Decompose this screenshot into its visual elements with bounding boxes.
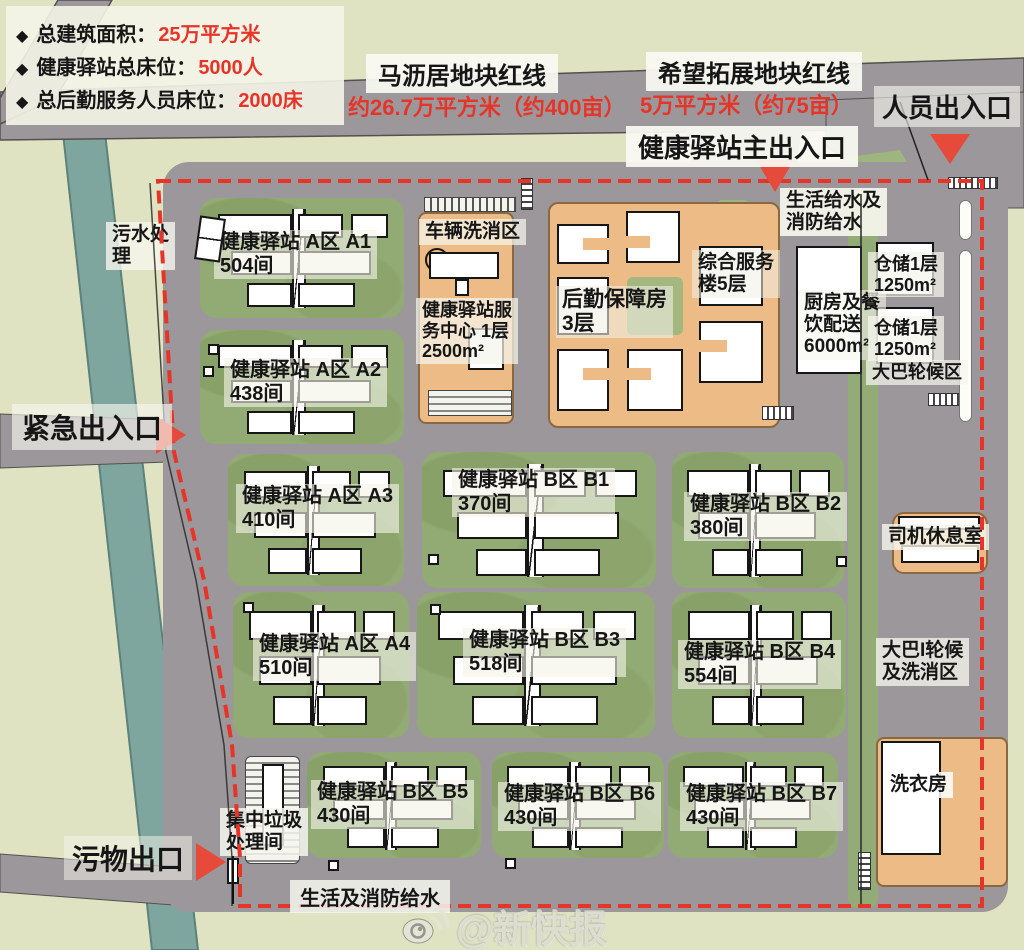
parcel-right-title: 希望拓展地块红线 [646, 52, 862, 91]
dorm-building [531, 696, 598, 725]
parcel-right-area: 5万平方米（约75亩） [640, 88, 853, 120]
crosswalk [948, 177, 998, 189]
legend-value: 5000人 [198, 51, 263, 80]
block-b5: 健康驿站 B区 B5430间 [307, 752, 481, 858]
dorm-building [298, 283, 355, 307]
dorm-building [534, 549, 600, 576]
block-a2: 健康驿站 A区 A2438间 [200, 330, 404, 444]
block-a4-label: 健康驿站 A区 A4510间 [253, 632, 416, 681]
main-entrance-label: 健康驿站主出入口 [626, 126, 858, 167]
block-a4: 健康驿站 A区 A4510间 [233, 592, 409, 738]
block-b7: 健康驿站 B区 B7430间 [668, 752, 838, 858]
block-name: 健康驿站 B区 B3 [469, 629, 620, 653]
service-center-label: 健康驿站服 务中心 1层 2500m² [416, 298, 518, 364]
room-count: 510间 [259, 657, 410, 681]
dorm-building [247, 283, 292, 307]
room-count: 518间 [469, 653, 620, 677]
wash-hatch-pad [428, 390, 512, 416]
diamond-bullet-icon: ◆ [16, 92, 28, 112]
wash-hatch-strip [424, 197, 516, 212]
corner-marker [836, 556, 847, 567]
diamond-bullet-icon: ◆ [16, 26, 28, 46]
watermark: @新快报 [398, 898, 607, 950]
logistics-label: 后勤保障房 3层 [556, 286, 673, 338]
corner-marker [428, 554, 439, 565]
corner-marker [328, 860, 339, 871]
corner-marker [430, 604, 441, 615]
bus-wait-label: 大巴轮候区 [866, 360, 968, 385]
block-b2: 健康驿站 B区 B2380间 [672, 452, 844, 588]
room-count: 504间 [220, 255, 371, 279]
dorm-building [712, 549, 750, 576]
emergency-entrance-label: 紧急出入口 [12, 404, 172, 450]
parcel-left-area: 约26.7万平方米（约400亩） [348, 90, 626, 122]
laundry-label: 洗衣房 [884, 772, 953, 798]
legend-item: ◆ 总后勤服务人员床位： 2000床 [16, 84, 334, 113]
legend-panel: ◆ 总建筑面积： 25万平方米 ◆ 健康驿站总床位： 5000人 ◆ 总后勤服务… [6, 6, 344, 125]
block-name: 健康驿站 B区 B2 [690, 493, 841, 517]
room-count: 410间 [242, 509, 393, 533]
dorm-building [755, 549, 803, 576]
legend-item: ◆ 健康驿站总床位： 5000人 [16, 51, 334, 80]
building-notch [625, 368, 651, 380]
block-name: 健康驿站 A区 A1 [220, 231, 371, 255]
block-b3-label: 健康驿站 B区 B3518间 [463, 628, 626, 677]
block-b7-label: 健康驿站 B区 B7430间 [680, 782, 843, 831]
bus-wash-label: 大巴I轮候 及洗消区 [876, 638, 969, 686]
room-count: 380间 [690, 517, 841, 541]
logistics-building [699, 321, 763, 383]
block-b3: 健康驿站 B区 B3518间 [417, 592, 655, 738]
block-name: 健康驿站 A区 A4 [259, 633, 410, 657]
legend-label: 健康驿站总床位： [36, 51, 196, 80]
diamond-bullet-icon: ◆ [16, 59, 28, 79]
legend-label: 总建筑面积： [36, 18, 156, 47]
dorm-building [756, 611, 794, 640]
vehicle-wash-label: 车辆洗消区 [419, 219, 526, 245]
block-name: 健康驿站 A区 A3 [242, 485, 393, 509]
corner-marker [203, 366, 214, 377]
weibo-logo-icon [398, 904, 450, 948]
person-entrance-label: 人员出入口 [874, 86, 1020, 127]
dorm-building [476, 549, 527, 576]
pipe-segment [227, 858, 239, 884]
room-count: 430间 [317, 805, 468, 829]
garbage-label: 集中垃圾 处理间 [220, 808, 308, 856]
water-supply-top-label: 生活给水及 消防给水 [780, 188, 887, 236]
road-lane-marker [959, 250, 972, 422]
site-plan-map: 健康驿站 A区 A1504间 健康驿站 A区 A2438间 健康驿站 A区 A3… [0, 0, 1024, 950]
dorm-building [347, 827, 385, 848]
road-lane-marker [959, 200, 972, 240]
driver-rest-label: 司机休息室 [882, 524, 989, 550]
room-count: 370间 [458, 493, 609, 517]
block-b1-label: 健康驿站 B区 B1370间 [452, 468, 615, 517]
legend-value: 25万平方米 [158, 18, 260, 47]
room-count: 554间 [684, 665, 835, 689]
legend-label: 总后勤服务人员床位： [36, 84, 236, 113]
dorm-building [391, 827, 440, 848]
parcel-left-title: 马沥居地块红线 [366, 54, 558, 93]
dorm-building [312, 548, 361, 574]
block-b4-label: 健康驿站 B区 B4554间 [678, 640, 841, 689]
sewage-label: 污水处 理 [106, 222, 175, 270]
dorm-building [247, 411, 292, 434]
laundry-building [881, 741, 941, 855]
corner-marker [208, 344, 219, 355]
dorm-building [317, 696, 366, 725]
block-name: 健康驿站 B区 B4 [684, 641, 835, 665]
complex-label: 综合服务 楼5层 [692, 250, 780, 298]
block-b2-label: 健康驿站 B区 B2380间 [684, 492, 847, 541]
waste-exit-label: 污物出口 [64, 836, 192, 880]
room-count: 430间 [504, 807, 655, 831]
block-a3-label: 健康驿站 A区 A3410间 [236, 484, 399, 533]
storage-2-label: 仓储1层 1250m² [868, 316, 944, 361]
room-count: 430间 [686, 807, 837, 831]
dorm-building [268, 548, 307, 574]
block-b6: 健康驿站 B区 B6430间 [492, 752, 664, 858]
crosswalk [858, 852, 871, 890]
building-notch [583, 368, 611, 380]
block-b4: 健康驿站 B区 B4554间 [672, 592, 846, 738]
service-center-building-1 [429, 252, 499, 279]
crosswalk [521, 178, 533, 210]
legend-value: 2000床 [238, 84, 303, 113]
watermark-handle: @新快报 [456, 898, 607, 950]
storage-1-label: 仓储1层 1250m² [868, 252, 944, 297]
dorm-building [688, 611, 751, 640]
block-b5-label: 健康驿站 B区 B5430间 [311, 780, 474, 829]
dorm-building [756, 696, 805, 725]
block-b6-label: 健康驿站 B区 B6430间 [498, 782, 661, 831]
block-a2-label: 健康驿站 A区 A2438间 [224, 358, 387, 407]
block-name: 健康驿站 B区 B1 [458, 469, 609, 493]
dorm-building [712, 696, 750, 725]
block-a1-label: 健康驿站 A区 A1504间 [214, 230, 377, 279]
block-name: 健康驿站 A区 A2 [230, 359, 381, 383]
block-a1: 健康驿站 A区 A1504间 [200, 198, 404, 318]
block-a3: 健康驿站 A区 A3410间 [228, 454, 404, 586]
dorm-building [801, 611, 832, 640]
logistics-building [557, 349, 609, 411]
block-name: 健康驿站 B区 B7 [686, 783, 837, 807]
room-count: 438间 [230, 383, 381, 407]
dorm-building [273, 696, 312, 725]
building-notch [624, 236, 650, 248]
corner-marker [243, 602, 254, 613]
logistics-building [627, 349, 683, 411]
service-center-link [455, 279, 469, 296]
dorm-building [472, 696, 524, 725]
block-name: 健康驿站 B区 B5 [317, 781, 468, 805]
crosswalk [762, 406, 794, 420]
dorm-building [298, 411, 355, 434]
block-name: 健康驿站 B区 B6 [504, 783, 655, 807]
block-b1: 健康驿站 B区 B1370间 [422, 452, 656, 588]
corner-marker [505, 858, 516, 869]
legend-item: ◆ 总建筑面积： 25万平方米 [16, 18, 334, 47]
building-notch [583, 238, 611, 250]
building-notch [697, 340, 727, 352]
